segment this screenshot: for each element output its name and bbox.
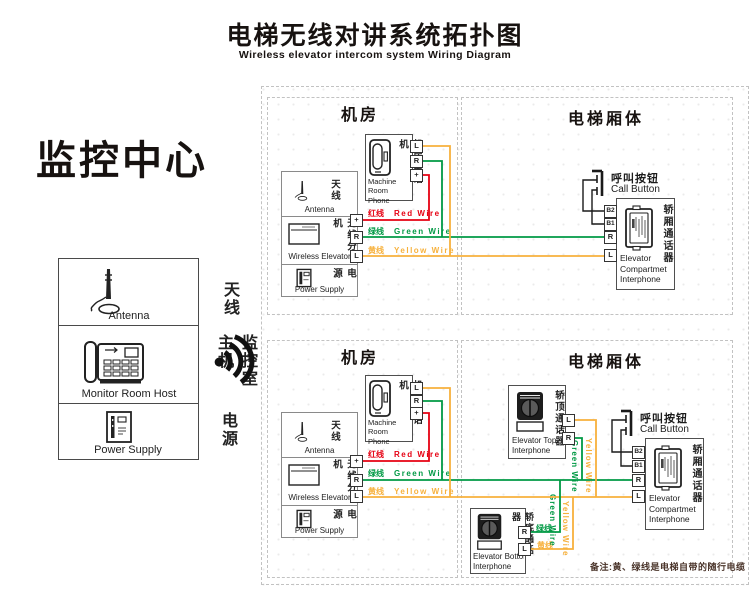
label-line: Interphone <box>649 514 701 525</box>
wireless-antenna-label-en: Antenna <box>282 446 357 455</box>
wireless-power-label-en: Power Supply <box>282 285 357 294</box>
terminal-R: R <box>604 231 617 244</box>
label-line: Elevator Bottom <box>473 552 524 562</box>
elevator-top-interphone-box: 轿顶通话器 Elevator Top Interphone <box>508 385 566 459</box>
divider <box>282 216 357 217</box>
terminal-L: L <box>604 249 617 262</box>
top-machine-room-title: 机房 <box>330 101 390 125</box>
speaker-icon <box>476 513 503 551</box>
elevator-bottom-interphone-box: 轿底通话器 Elevator Bottom Interphone <box>470 508 526 574</box>
monitor-antenna-label-en: Antenna <box>69 310 189 322</box>
wireless-extension-icon <box>288 464 320 486</box>
compartment-interphone-label-en: Elevator Compartmet Interphone <box>649 493 701 525</box>
wireless-extension-label-en: Wireless Elevator <box>282 252 357 261</box>
elevator-top-interphone-label-en: Elevator Top Interphone <box>512 436 564 456</box>
top-car-body-frame <box>461 97 733 315</box>
monitor-power-label-en: Power Supply <box>63 444 193 456</box>
terminal-plus: + <box>350 214 363 227</box>
yellow-wire-vertical-label: Yellow Wire <box>561 501 570 556</box>
monitor-antenna-cell: 天线 Antenna <box>59 259 198 325</box>
wire-label-zh: 黄线 <box>368 487 384 496</box>
yellow-wire-label: 黄线Yellow Wire <box>368 245 455 256</box>
label-line: Elevator Top <box>512 436 564 446</box>
wire-label-en: Red Wire <box>394 450 441 459</box>
terminal-L: L <box>410 140 423 153</box>
compartment-interphone-label-en: Elevator Compartmet Interphone <box>620 253 672 285</box>
wireless-signal-icon <box>207 328 261 392</box>
power-supply-icon <box>105 410 133 444</box>
monitor-power-label-zh: 电源 <box>215 412 239 450</box>
terminal-R: R <box>410 155 423 168</box>
green-wire-vertical-label: Green Wire <box>570 440 579 493</box>
terminal-R: R <box>562 432 575 445</box>
divider <box>282 505 357 506</box>
call-button-en: Call Button <box>611 184 660 195</box>
red-wire-label: 红线Red Wire <box>368 449 441 460</box>
wire-label-zh: 红线 <box>368 209 384 218</box>
terminal-plus: + <box>410 407 423 420</box>
label-line: Compartmet <box>649 504 701 515</box>
speaker-icon <box>515 391 545 433</box>
yellow-wire-label: 黄线Yellow Wire <box>368 486 455 497</box>
label-line: Elevator <box>649 493 701 504</box>
compartment-interphone-box: 轿厢通话器 Elevator Compartmet Interphone <box>645 438 704 530</box>
divider <box>282 457 357 458</box>
wireless-unit-box: 天线 Antenna 无线分机 Wireless Elevator 电源 Pow… <box>281 171 358 297</box>
terminal-R: R <box>632 474 645 487</box>
green-wire-label: 绿线Green Wire <box>368 226 452 237</box>
terminal-plus: + <box>410 169 423 182</box>
wire-label-en: Green Wire <box>394 469 452 478</box>
wireless-unit-box: 天线 Antenna 无线分机 Wireless Elevator 电源 Pow… <box>281 412 358 538</box>
label-line: Interphone <box>473 562 524 572</box>
wire-label-zh: 绿线 <box>368 227 384 236</box>
wire-label-en: Yellow Wire <box>394 487 455 496</box>
top-car-body-title: 电梯厢体 <box>560 105 652 129</box>
wireless-antenna-label-en: Antenna <box>282 205 357 214</box>
compartment-interphone-box: 轿厢通话器 Elevator Compartmet Interphone <box>616 198 675 290</box>
green-wire-vertical-label: Green Wire <box>548 494 557 547</box>
terminal-B1: B1 <box>604 218 617 231</box>
call-button-label-en: Call Button <box>611 184 660 195</box>
terminal-R: R <box>350 474 363 487</box>
terminal-L: L <box>518 543 531 556</box>
wire-label-en: Red Wire <box>394 209 441 218</box>
monitor-center-panel: 天线 Antenna 监控室主机 Monitor Room Host <box>58 258 199 460</box>
wire-label-zh: 黄线 <box>368 246 384 255</box>
terminal-plus: + <box>350 455 363 468</box>
monitor-power-cell: 电源 Power Supply <box>59 404 198 459</box>
wireless-extension-label-en: Wireless Elevator <box>282 493 357 502</box>
machine-room-phone-box: 机房电话机 Machine Room Phone <box>365 375 413 442</box>
label-line: Interphone <box>512 446 564 456</box>
desk-phone-icon <box>83 336 147 388</box>
label-line: Compartmet <box>620 264 672 275</box>
elevator-bottom-interphone-label-en: Elevator Bottom Interphone <box>473 552 524 572</box>
terminal-B1: B1 <box>632 460 645 473</box>
label-line: Machine <box>368 177 411 186</box>
yellow-wire-vertical-label: Yellow Wire <box>584 438 593 493</box>
label-line: Room Phone <box>368 186 411 205</box>
machine-room-phone-label-en: Machine Room Phone <box>368 177 411 205</box>
wireless-antenna-label-zh: 天线 <box>327 179 341 203</box>
label-line: Machine <box>368 418 411 427</box>
footnote: 备注:黄、绿线是电梯自带的随行电缆 <box>590 560 746 573</box>
wireless-extension-icon <box>288 223 320 245</box>
terminal-R: R <box>518 526 531 539</box>
wall-phone-icon <box>369 139 391 177</box>
wire-label-en: Green Wire <box>394 227 452 236</box>
terminal-L: L <box>410 382 423 395</box>
terminal-L: L <box>632 490 645 503</box>
machine-room-phone-label-en: Machine Room Phone <box>368 418 411 446</box>
red-wire-label: 红线Red Wire <box>368 208 441 219</box>
green-wire-label: 绿线Green Wire <box>368 468 452 479</box>
wiring-diagram-page: 电梯无线对讲系统拓扑图 Wireless elevator intercom s… <box>0 0 750 589</box>
page-subtitle: Wireless elevator intercom system Wiring… <box>0 49 750 61</box>
wall-phone-icon <box>369 380 391 418</box>
terminal-L: L <box>350 490 363 503</box>
bottom-car-body-title: 电梯厢体 <box>560 348 652 372</box>
wireless-power-label-en: Power Supply <box>282 526 357 535</box>
wire-label-zh: 绿线 <box>368 469 384 478</box>
intercom-icon <box>624 205 654 251</box>
call-button-en: Call Button <box>640 424 689 435</box>
label-line: Interphone <box>620 274 672 285</box>
bottom-machine-room-title: 机房 <box>330 344 390 368</box>
terminal-L: L <box>350 250 363 263</box>
terminal-B2: B2 <box>632 446 645 459</box>
wire-label-en: Yellow Wire <box>394 246 455 255</box>
terminal-L: L <box>562 414 575 427</box>
call-button-label-en: Call Button <box>640 424 689 435</box>
monitor-antenna-label-zh: 天线 <box>217 281 241 321</box>
label-line: Room Phone <box>368 427 411 446</box>
intercom-icon <box>653 445 683 491</box>
antenna-icon <box>292 419 312 445</box>
monitor-host-label-en: Monitor Room Host <box>61 388 197 400</box>
monitor-host-cell: 监控室主机 Monitor Room Host <box>59 326 198 403</box>
wire-label-zh: 红线 <box>368 450 384 459</box>
terminal-B2: B2 <box>604 205 617 218</box>
divider <box>282 264 357 265</box>
monitor-center-title: 监控中心 <box>36 128 208 186</box>
page-title: 电梯无线对讲系统拓扑图 <box>0 16 750 52</box>
label-line: Elevator <box>620 253 672 264</box>
machine-room-phone-box: 机房电话机 Machine Room Phone <box>365 134 413 201</box>
antenna-icon <box>292 178 312 204</box>
wireless-antenna-label-zh: 天线 <box>327 420 341 444</box>
terminal-R: R <box>350 231 363 244</box>
